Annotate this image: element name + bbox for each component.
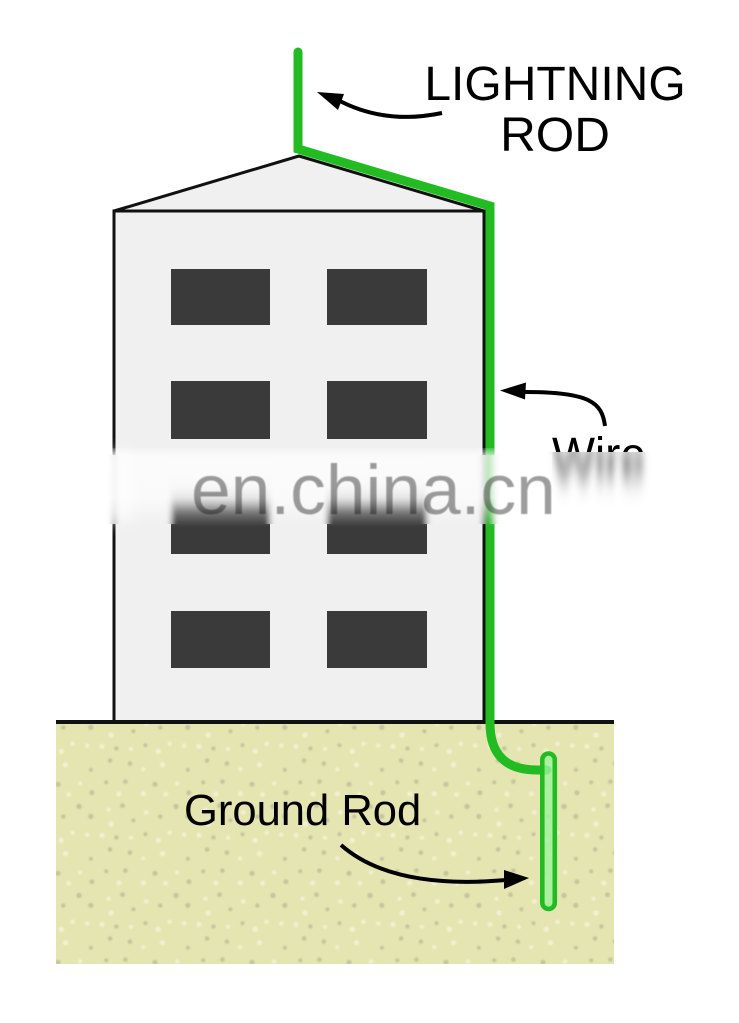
- svg-text:Ground Rod: Ground Rod: [184, 786, 421, 835]
- svg-text:LIGHTNING: LIGHTNING: [424, 58, 685, 111]
- svg-text:en.china.cn: en.china.cn: [191, 451, 556, 530]
- svg-text:ROD: ROD: [500, 109, 610, 162]
